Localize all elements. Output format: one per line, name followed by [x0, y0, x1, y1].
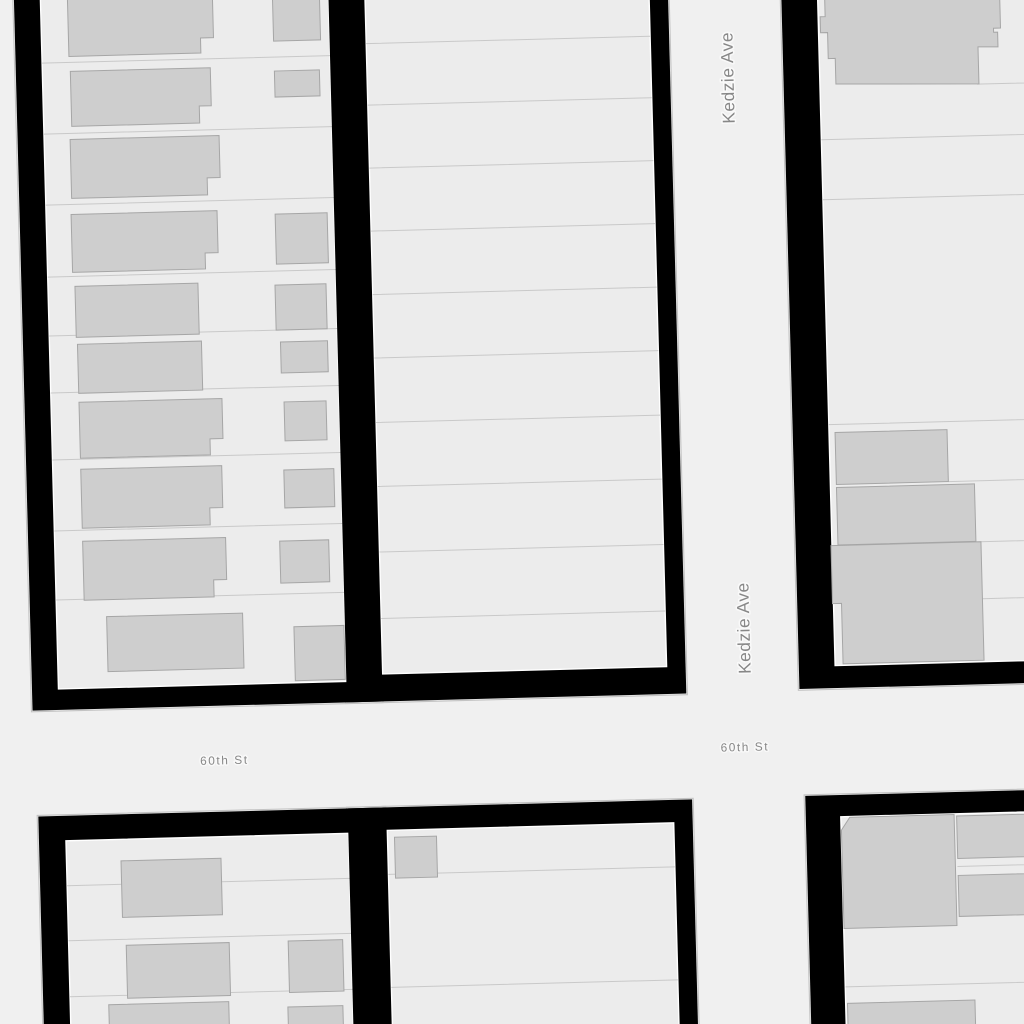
- svg-text:Kedzie Ave: Kedzie Ave: [732, 582, 754, 674]
- svg-text:60th St: 60th St: [720, 739, 769, 754]
- svg-text:60th St: 60th St: [200, 753, 249, 768]
- svg-text:Kedzie Ave: Kedzie Ave: [716, 32, 738, 124]
